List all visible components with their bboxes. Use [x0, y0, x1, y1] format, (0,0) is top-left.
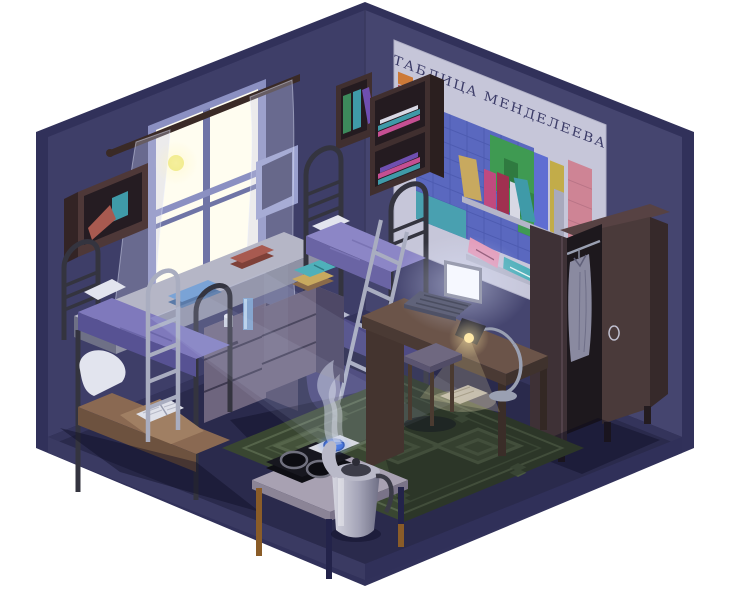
illustration-isometric-dorm-room: ТАБЛИЦА МЕНДЕЛЕЕВА [0, 0, 740, 600]
table-leg-left [256, 488, 262, 556]
kettle-knob [352, 458, 360, 466]
wardrobe-side [650, 217, 668, 408]
rod-end-cap [106, 149, 114, 157]
table-leg-front [326, 519, 332, 579]
desk-front-leg [498, 378, 506, 456]
kettle-highlight [338, 478, 344, 526]
book-green [343, 93, 351, 134]
book-teal [353, 89, 361, 130]
scene-canvas: ТАБЛИЦА МЕНДЕЛЕЕВА [0, 0, 740, 600]
hanging-shirt [568, 249, 591, 362]
table-leg-right-lit [398, 524, 404, 547]
stove-burner-1 [281, 452, 307, 468]
lamp-base [489, 391, 517, 402]
wardrobe-closed-door [602, 217, 650, 424]
moon-glow [154, 141, 198, 185]
bookcase-side [430, 74, 444, 178]
wall-light-wash [264, 262, 288, 362]
